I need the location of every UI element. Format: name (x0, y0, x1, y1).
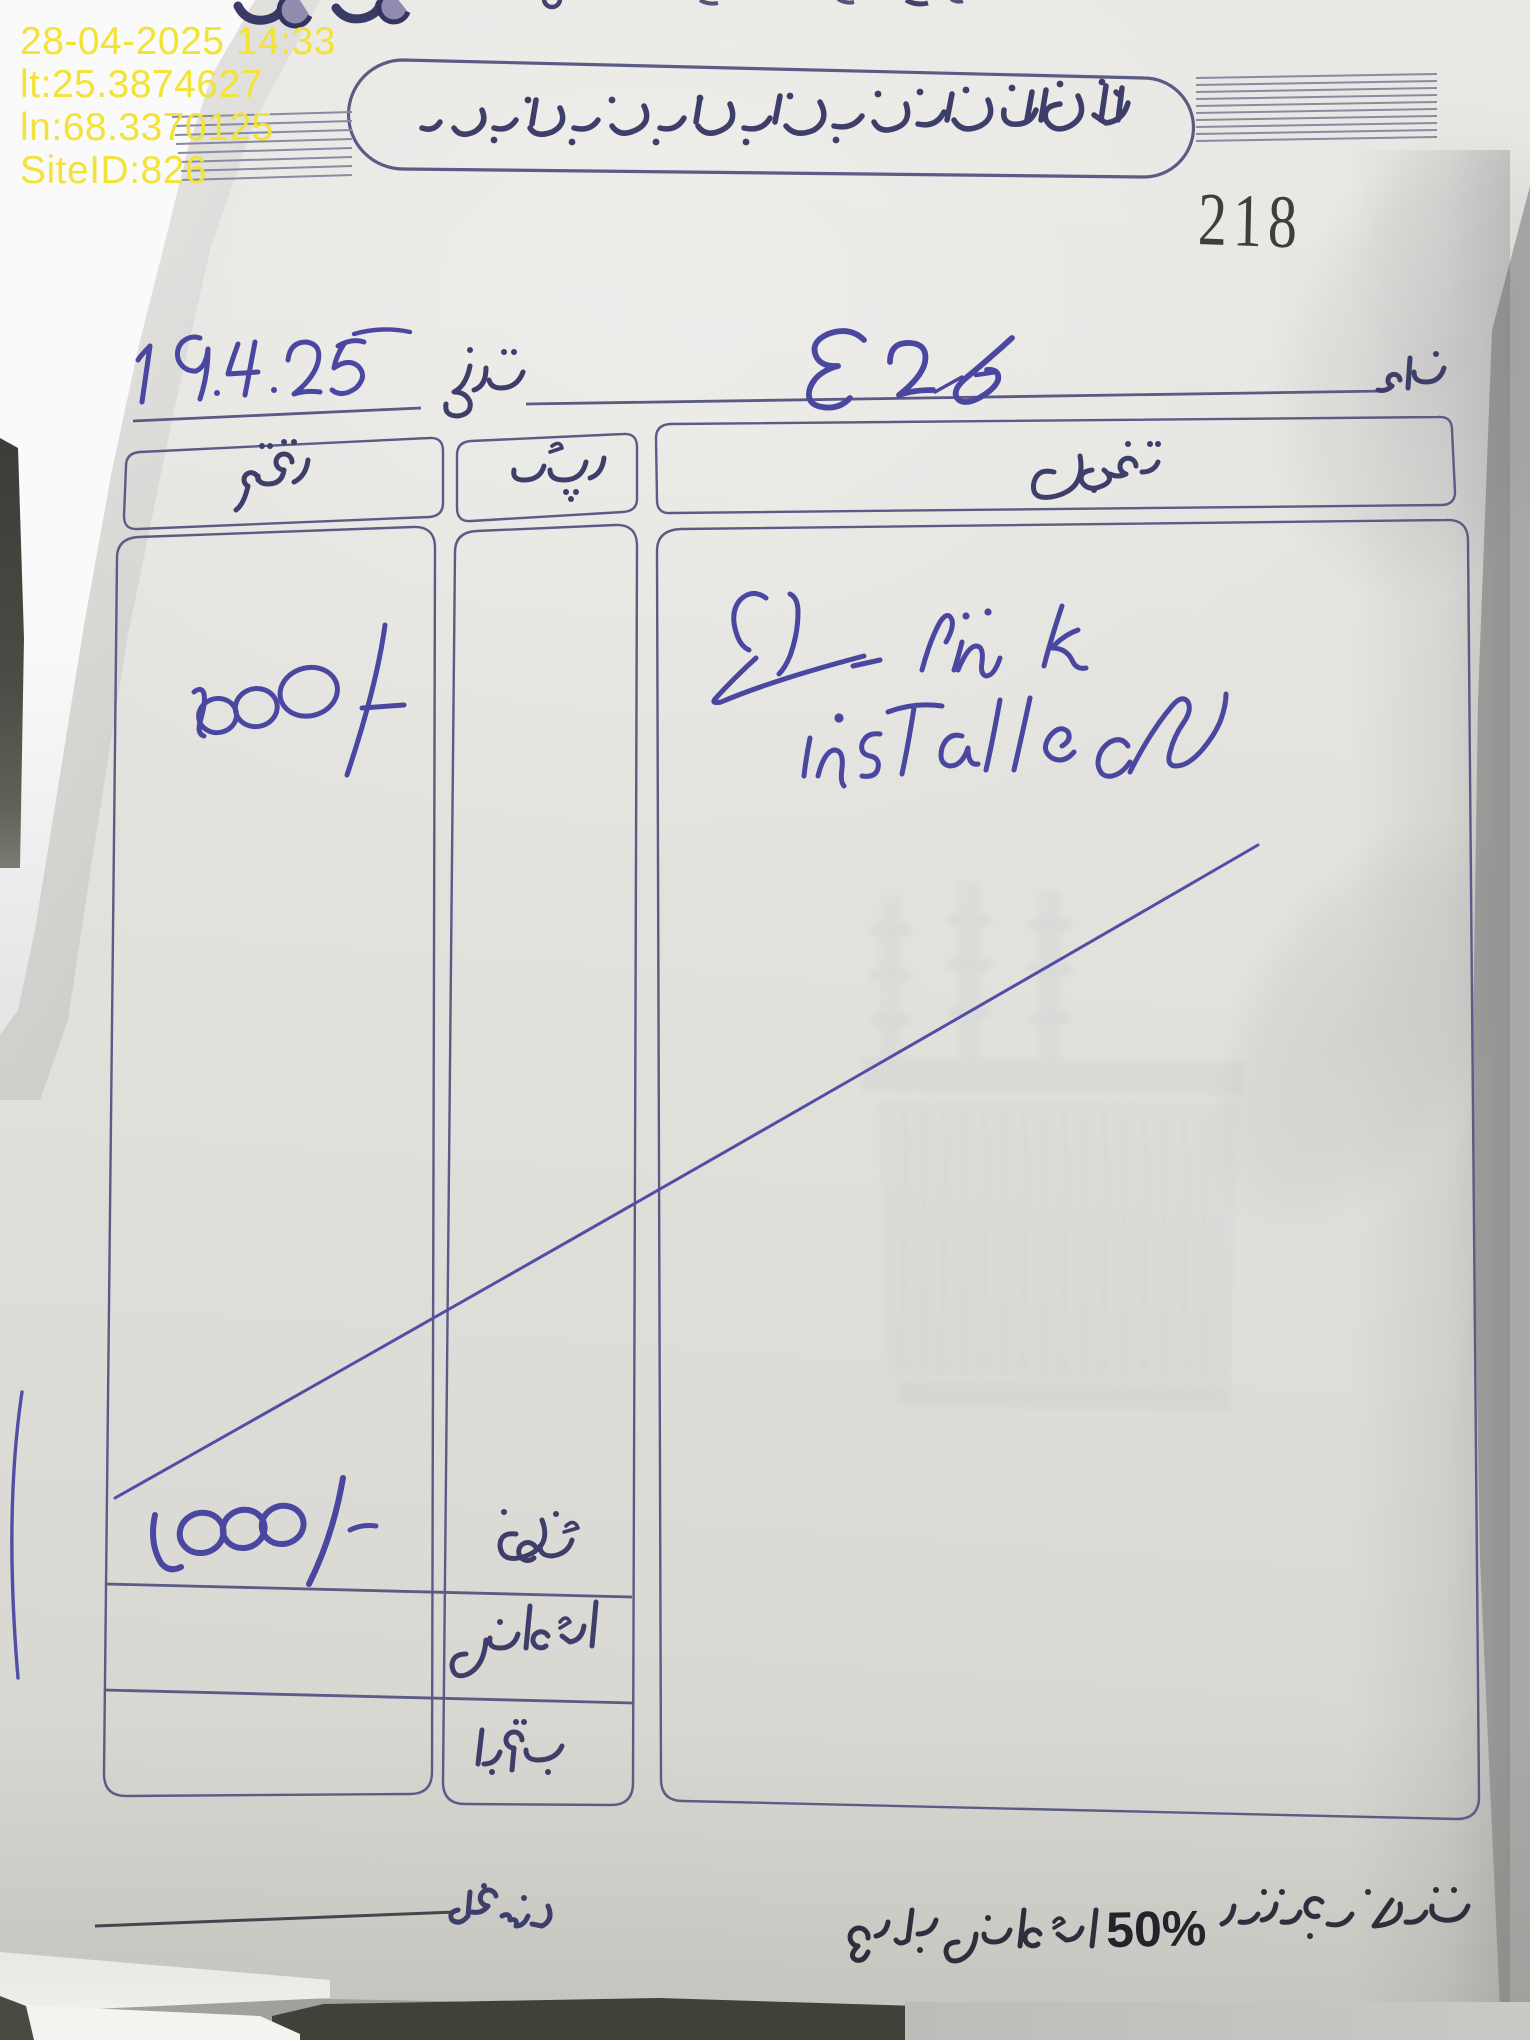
svg-text:50%: 50% (1106, 1900, 1207, 1958)
svg-text:218: 218 (1197, 177, 1304, 265)
